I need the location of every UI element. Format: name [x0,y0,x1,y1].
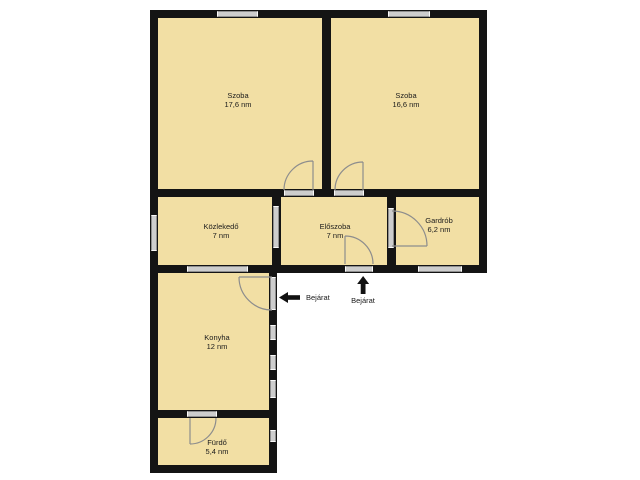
room-name: Szoba [224,91,251,100]
room-area: 7 nm [320,231,351,240]
window-konyha-3 [270,380,276,398]
arrow-up-icon [357,276,369,294]
wall-bottom-lower [150,465,277,473]
window-konyha-2 [270,355,276,370]
entrance-marker-eloszoba: Bejárat [351,276,375,305]
room-area: 6,2 nm [425,225,453,234]
window-konyha-1 [270,325,276,340]
wall-top [150,10,487,18]
room-area: 7 nm [203,231,238,240]
floorplan-canvas: Szoba 17,6 nm Szoba 16,6 nm Közlekedő 7 … [0,0,640,480]
window-szoba1-top [217,11,258,17]
room-label-szoba-2: Szoba 16,6 nm [392,91,419,109]
window-furdo [270,430,276,442]
arrow-left-icon [279,292,300,303]
window-kozlekedo-left [151,215,157,251]
room-label-kozlekedo: Közlekedő 7 nm [203,222,238,240]
room-label-gardrob: Gardrób 6,2 nm [425,216,453,234]
entrance-label: Bejárat [351,296,375,305]
room-area: 5,4 nm [206,447,229,456]
door-opening-entrance-eloszoba [345,266,373,272]
room-name: Fürdő [206,438,229,447]
entrance-marker-konyha: Bejárat [279,292,330,303]
room-area: 16,6 nm [392,100,419,109]
room-label-eloszoba: Előszoba 7 nm [320,222,351,240]
room-label-szoba-1: Szoba 17,6 nm [224,91,251,109]
entrance-label: Bejárat [306,293,330,302]
opening-kozlekedo-konyha [187,266,248,272]
door-opening-entrance-konyha [270,277,276,310]
wall-szoba-bottom [150,189,487,197]
room-name: Közlekedő [203,222,238,231]
door-opening-gardrob [388,208,394,248]
room-label-furdo: Fürdő 5,4 nm [206,438,229,456]
wall-szoba-divider [322,18,331,189]
door-opening-szoba1 [284,190,314,196]
opening-kozlekedo-eloszoba [273,206,279,248]
door-opening-szoba2 [334,190,364,196]
wall-right-upper [479,10,487,273]
room-label-konyha: Konyha 12 nm [204,333,229,351]
door-opening-furdo [187,411,217,417]
room-name: Szoba [392,91,419,100]
wall-left-lower [150,265,158,473]
room-area: 17,6 nm [224,100,251,109]
room-name: Előszoba [320,222,351,231]
room-area: 12 nm [204,342,229,351]
room-name: Konyha [204,333,229,342]
window-szoba2-top [388,11,430,17]
room-name: Gardrób [425,216,453,225]
window-gardrob-bottom [418,266,462,272]
